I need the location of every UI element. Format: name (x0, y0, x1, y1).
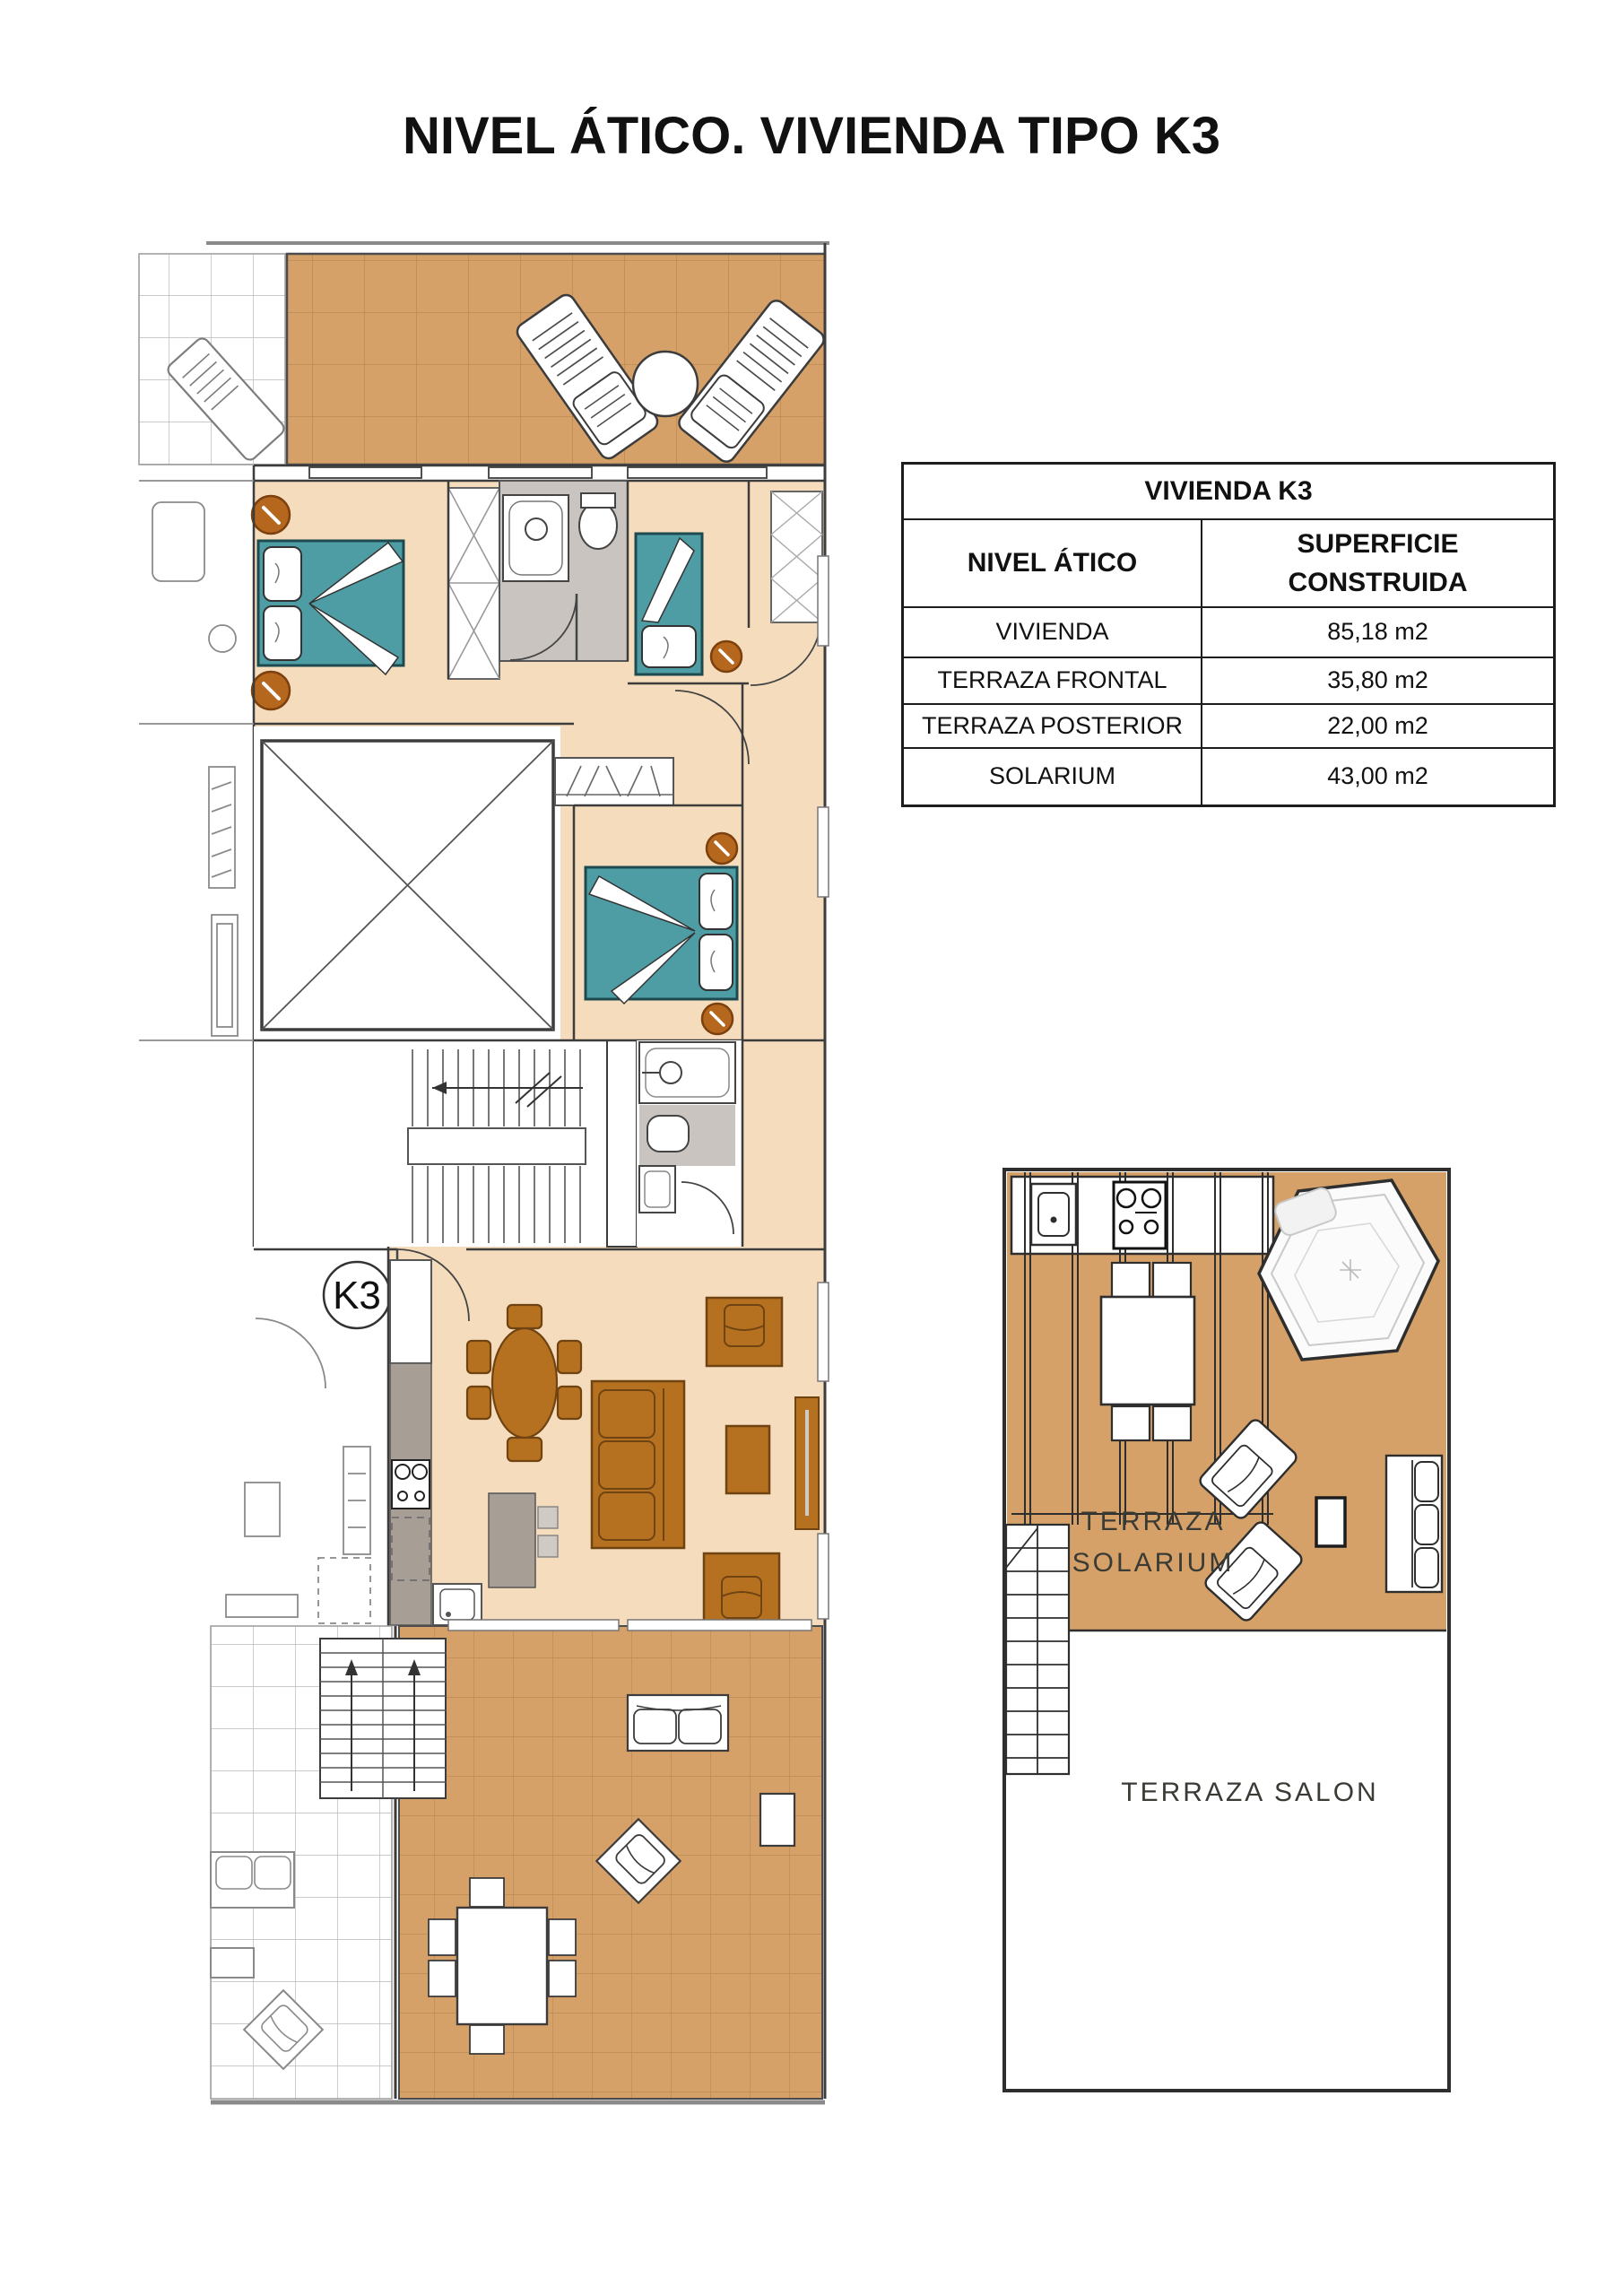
row-label: TERRAZA POSTERIOR (904, 705, 1201, 749)
armchair (707, 1298, 782, 1366)
armchair (704, 1553, 779, 1622)
row-label: SOLARIUM (904, 749, 1201, 804)
kitchen-island (489, 1493, 535, 1587)
sofa (592, 1381, 684, 1548)
outdoor-stove (1114, 1182, 1166, 1248)
bedside-table (711, 641, 742, 672)
terrace-chair (549, 1961, 576, 1996)
window (818, 1534, 829, 1619)
terrace-wall-windows (254, 465, 825, 481)
solarium-side-table (1316, 1498, 1345, 1546)
window (818, 1283, 829, 1381)
unit-badge: K3 (324, 1262, 390, 1328)
main-plan: K3 (139, 243, 829, 2102)
solarium-terrace-label-line1: TERRAZA (1081, 1507, 1225, 1536)
table-row: TERRAZA FRONTAL 35,80 m2 (904, 658, 1553, 705)
dining-table (492, 1328, 557, 1438)
stool (538, 1507, 558, 1528)
solarium-table (1101, 1297, 1194, 1405)
toilet (647, 1116, 689, 1152)
terrace-chair (470, 2025, 504, 2054)
page: NIVEL ÁTICO. VIVIENDA TIPO K3 (0, 0, 1623, 2296)
outdoor-sink (1031, 1184, 1076, 1245)
dining-chair (467, 1341, 490, 1373)
dining-chair (508, 1438, 542, 1461)
solarium-sofa (1386, 1456, 1442, 1592)
hall-closet (771, 491, 822, 622)
pillow (642, 626, 696, 667)
dining-chair (467, 1387, 490, 1419)
row-value: 35,80 m2 (1201, 658, 1553, 705)
toilet (579, 502, 617, 549)
terrace-chair (429, 1961, 456, 1996)
terrace-door-sill (628, 1620, 811, 1631)
pillow (699, 935, 733, 990)
coffee-table (726, 1426, 769, 1493)
terraza-salon-label: TERRAZA SALON (1121, 1778, 1378, 1807)
terrace-side-table (760, 1794, 794, 1846)
unit-badge-label: K3 (333, 1274, 381, 1318)
row-label: TERRAZA FRONTAL (904, 658, 1201, 705)
solarium-terrace-label-line2: SOLARIUM (1072, 1548, 1235, 1578)
solarium-plan: TERRAZA SOLARIUM TERRAZA SALON (1004, 1170, 1449, 2091)
terrace-stairs-up (320, 1639, 446, 1798)
bedside-table (702, 1004, 733, 1034)
wardrobe (448, 488, 499, 679)
kitchen-cabinet (390, 1260, 431, 1363)
corridor-shelf (555, 758, 673, 805)
bedside-table (707, 833, 737, 864)
dining-chair (558, 1341, 581, 1373)
chair (1112, 1406, 1150, 1440)
row-label: VIVIENDA (904, 608, 1201, 658)
dining-chair (558, 1387, 581, 1419)
terrace-chair (549, 1919, 576, 1955)
terrace-chair (429, 1919, 456, 1955)
bathtub (503, 495, 568, 581)
bedside-table (252, 496, 290, 534)
pillow (264, 547, 301, 601)
stairs-landing (408, 1128, 586, 1164)
surface-table: VIVIENDA K3 NIVEL ÁTICO SUPERFICIE CONST… (901, 462, 1556, 807)
terrace-door-sill (448, 1620, 619, 1631)
window (818, 556, 829, 646)
bedside-table (252, 672, 290, 709)
tv-console (795, 1397, 819, 1529)
solarium-dining-set (1101, 1263, 1194, 1440)
terrace-chair (470, 1878, 504, 1907)
row-value: 22,00 m2 (1201, 705, 1553, 749)
dining-chair (508, 1305, 542, 1328)
elevator-shaft (254, 726, 560, 1040)
table-row: SOLARIUM 43,00 m2 (904, 749, 1553, 804)
terrace-round-table (633, 352, 698, 416)
chair (1153, 1406, 1191, 1440)
posterior-terrace (139, 243, 829, 465)
pillow (264, 606, 301, 660)
row-value: 85,18 m2 (1201, 608, 1553, 658)
pillow (699, 874, 733, 929)
bathroom-1 (499, 481, 628, 661)
window (818, 807, 829, 897)
row-value: 43,00 m2 (1201, 749, 1553, 804)
chair (1112, 1263, 1150, 1297)
terrace-table (457, 1908, 547, 2024)
table-row: TERRAZA POSTERIOR 22,00 m2 (904, 705, 1553, 749)
frontal-terrace (211, 1620, 825, 2102)
surface-table-col2-header: SUPERFICIE CONSTRUIDA (1201, 520, 1553, 608)
solarium-stairs (1006, 1525, 1069, 1774)
stool (538, 1535, 558, 1557)
floor-plan-canvas: K3 (0, 0, 1623, 2296)
terrace-sofa (628, 1695, 728, 1751)
chair (1153, 1263, 1191, 1297)
surface-table-title: VIVIENDA K3 (904, 465, 1553, 520)
table-row: VIVIENDA 85,18 m2 (904, 608, 1553, 658)
surface-table-col1-header: NIVEL ÁTICO (904, 520, 1201, 608)
